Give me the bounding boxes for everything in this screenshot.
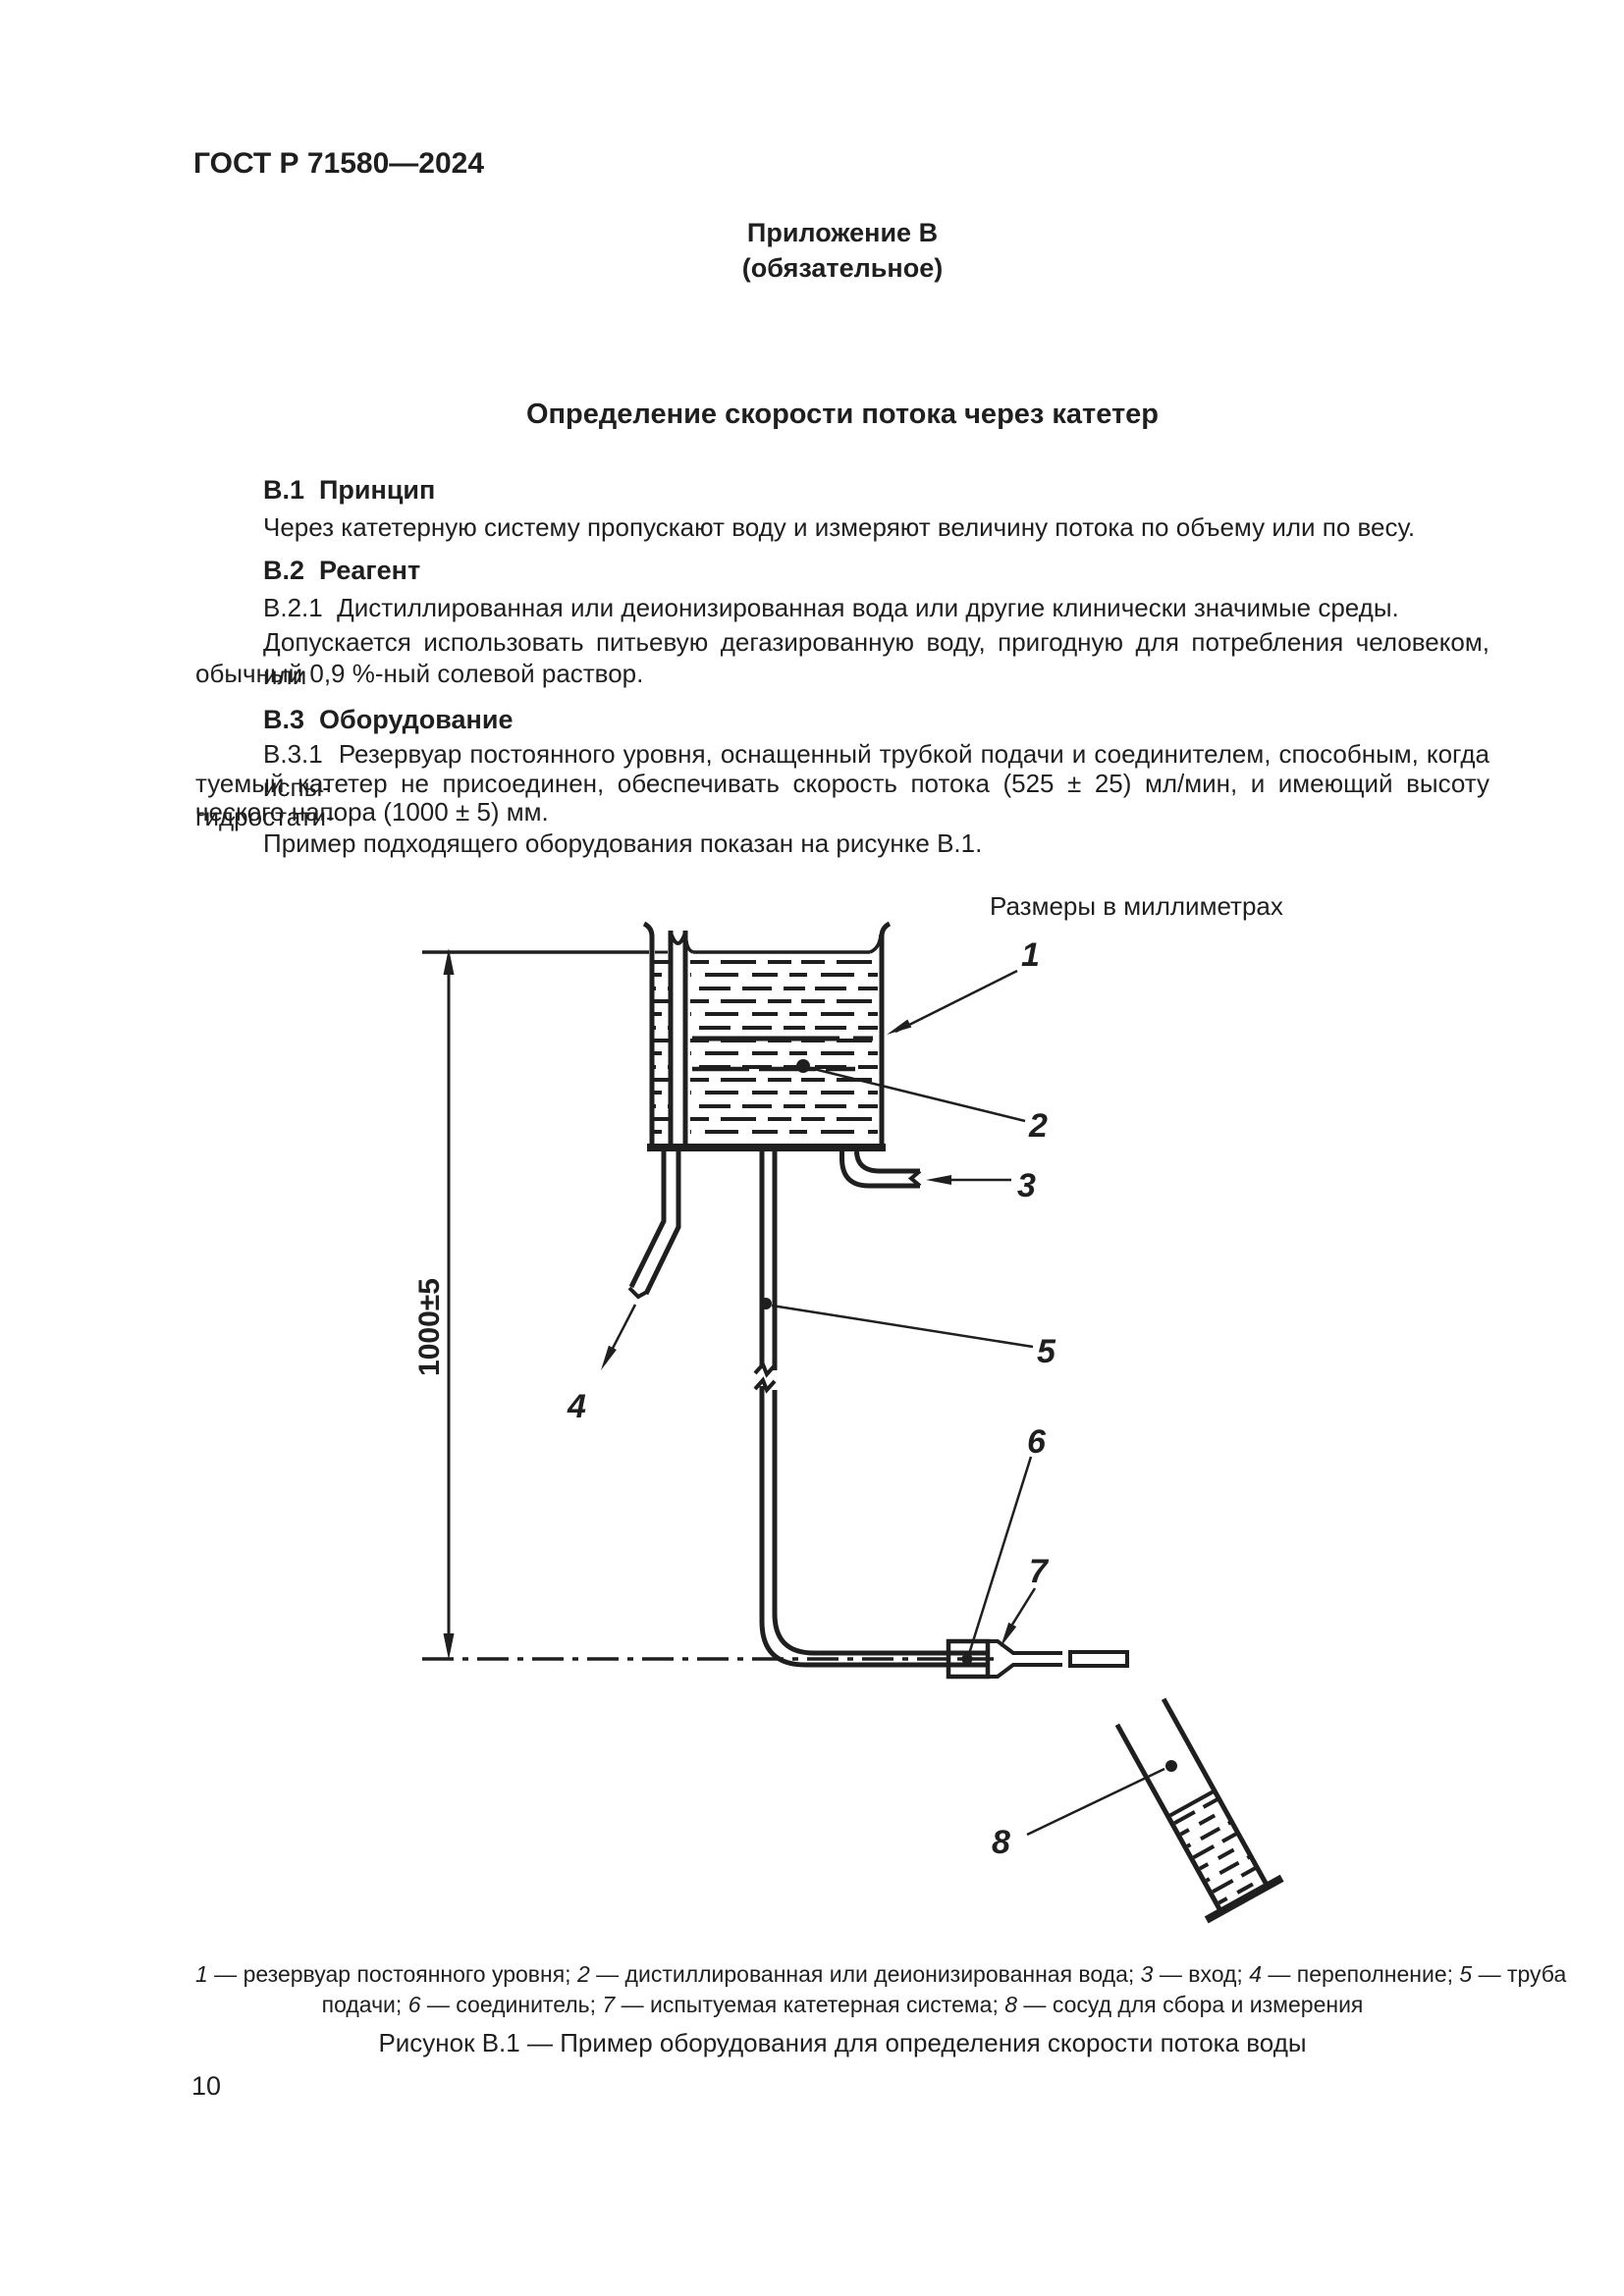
document-page: ГОСТ Р 71580—2024 Приложение В (обязател… (0, 0, 1624, 2296)
legend-item-number: 5 (1459, 1961, 1472, 1987)
callout-8: 8 (992, 1824, 1010, 1861)
callout-1: 1 (1021, 936, 1040, 974)
legend-item-text: — резервуар постоянного уровня; (208, 1961, 577, 1987)
section-b2-line1: В.2.1 Дистиллированная или деионизирован… (263, 591, 1399, 624)
callout-3: 3 (1017, 1167, 1036, 1204)
dimension-label: 1000±5 (413, 1278, 446, 1376)
figure-legend: 1 — резервуар постоянного уровня; 2 — ди… (195, 1959, 1489, 2020)
section-b2-line3: обычный 0,9 %-ный солевой раствор. (195, 657, 643, 690)
pipe-break-icon (755, 1364, 775, 1374)
dimension-arrow-down-icon (444, 1633, 455, 1660)
leader-dot-6 (962, 1654, 973, 1665)
legend-item-number: 8 (1004, 1992, 1017, 2017)
page-number: 10 (191, 2071, 221, 2102)
legend-item-number: 1 (195, 1961, 208, 1987)
callout-6: 6 (1027, 1423, 1047, 1461)
legend-item-number: 6 (408, 1992, 421, 2017)
leader-dot-8 (1165, 1760, 1177, 1772)
section-b3-line3: ческого напора (1000 ± 5) мм. (195, 795, 549, 828)
legend-item-number: 3 (1141, 1961, 1154, 1987)
figure-legend-line: 1 — резервуар постоянного уровня; 2 — ди… (195, 1959, 1489, 1990)
legend-item-text: подачи; (322, 1992, 408, 2017)
section-b2-heading: В.2 Реагент (263, 556, 420, 586)
document-header: ГОСТ Р 71580—2024 (193, 147, 484, 181)
legend-item-text: — вход; (1153, 1961, 1249, 1987)
figure-b1-diagram: 1000±5 (383, 913, 1326, 1944)
section-b3-heading: В.3 Оборудование (263, 705, 513, 735)
callout-7: 7 (1029, 1553, 1050, 1590)
legend-item-text: — труба (1472, 1961, 1566, 1987)
pipe-break-icon (755, 1380, 775, 1390)
callout-2: 2 (1028, 1107, 1048, 1145)
legend-item-text: — испытуемая катетерная система; (615, 1992, 1004, 2017)
collection-vessel (1027, 1691, 1282, 1920)
legend-item-number: 7 (602, 1992, 615, 2017)
legend-item-number: 2 (577, 1961, 590, 1987)
section-b3-line4: Пример подходящего оборудования показан … (263, 827, 982, 860)
appendix-type: (обязательное) (195, 253, 1489, 284)
catheter-hub (988, 1641, 1062, 1653)
overflow-flow-arrow-icon (601, 1346, 617, 1370)
overflow-riser-water-hatch (655, 959, 669, 1142)
inlet-pipe (842, 1147, 1012, 1186)
legend-item-text: — дистиллированная или деионизированная … (590, 1961, 1141, 1987)
legend-item-text: — переполнение; (1262, 1961, 1459, 1987)
catheter-segment (1070, 1652, 1127, 1666)
appendix-title: Определение скорости потока через катете… (195, 399, 1489, 431)
section-b1-paragraph: Через катетерную систему пропускают воду… (263, 510, 1415, 544)
callout-5: 5 (1037, 1333, 1056, 1370)
callout-4: 4 (567, 1388, 586, 1425)
section-b1-heading: В.1 Принцип (263, 475, 435, 506)
overflow-pipe (601, 1147, 678, 1370)
appendix-name: Приложение В (195, 218, 1489, 248)
leader-dot-2 (796, 1059, 810, 1073)
figure-caption: Рисунок В.1 — Пример оборудования для оп… (195, 2028, 1489, 2058)
callout-7-arrow-icon (1001, 1623, 1016, 1647)
legend-item-number: 4 (1249, 1961, 1262, 1987)
legend-item-text: — соединитель; (420, 1992, 602, 2017)
leader-dot-5 (760, 1298, 772, 1309)
inlet-flow-arrow-icon (926, 1175, 951, 1185)
callout-1-arrow-icon (887, 1020, 911, 1036)
legend-item-text: — сосуд для сбора и измерения (1017, 1992, 1363, 2017)
reservoir-water-hatch (690, 959, 878, 1140)
reservoir (644, 924, 890, 1148)
figure-legend-line: подачи; 6 — соединитель; 7 — испытуемая … (195, 1990, 1489, 2020)
